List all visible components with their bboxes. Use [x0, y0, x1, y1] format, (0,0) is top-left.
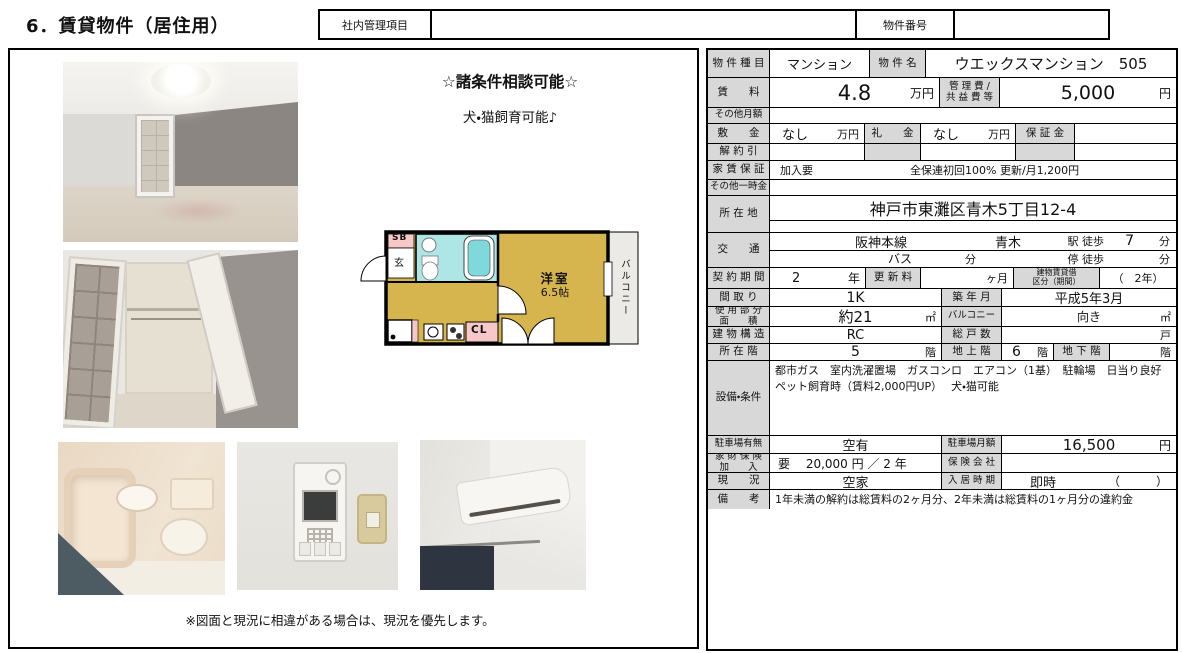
- row-remarks: 備 考 1年未満の解約は総賃料の2ヶ月分、2年未満は総賃料の1ヶ月分の違約金: [708, 490, 1176, 509]
- stop-suffix: 停 徒歩: [1068, 251, 1105, 267]
- photo-closet: [63, 250, 298, 428]
- washer-drain: [391, 335, 396, 340]
- floor-plan: SB 玄 CL 洋室 6.5帖 バルコニー: [360, 226, 660, 350]
- renewal-unit: ヶ月: [986, 270, 1008, 286]
- label-built: 築 年 月: [942, 289, 1002, 306]
- transport-train-line-row: 阪神本線 青木 駅 徒歩 7 分: [770, 233, 1176, 251]
- address-line2: [770, 221, 1176, 232]
- intercom-screen: [302, 490, 338, 522]
- header-bar: 社内管理項目 物件番号: [318, 9, 1110, 40]
- movein-paren: （ ）: [1108, 473, 1168, 489]
- label-address: 所 在 地: [708, 196, 770, 232]
- label-parking-fee: 駐車場月額: [942, 436, 1002, 453]
- room-glass-door: [135, 114, 175, 198]
- label-remarks: 備 考: [708, 490, 770, 509]
- row-equipment: 設備・条件 都市ガス 室内洗濯置場 ガスコンロ エアコン（1基） 駐輪場 日当り…: [708, 361, 1176, 436]
- balcony-unit: ㎡: [1160, 309, 1171, 325]
- photo-air-conditioner: [420, 440, 586, 590]
- light-switch: [357, 494, 387, 544]
- internal-mgmt-label: 社内管理項目: [320, 11, 432, 38]
- cancellation-blank-2: [1075, 144, 1176, 160]
- cancellation-value: [770, 144, 865, 160]
- floors-below-cell: 階: [1110, 344, 1176, 360]
- label-floors-above: 地 上 階: [942, 344, 1002, 360]
- label-area: 使 用 部 分 面 積: [708, 307, 770, 326]
- promo-line1: ☆諸条件相談可能☆: [340, 70, 680, 92]
- door-panes: [141, 120, 169, 192]
- property-no-label: 物件番号: [855, 11, 955, 38]
- layout-value: 1K: [770, 289, 942, 306]
- plan-room-size: 6.5帖: [520, 284, 590, 300]
- status-value: 空家: [770, 473, 942, 489]
- glass-panes: [65, 264, 120, 423]
- area-unit: ㎡: [925, 309, 936, 325]
- key-money-cell: なし 万円: [921, 124, 1016, 143]
- row-contract: 契 約 期 間 2 年 更 新 料 ヶ月 建物賃貸借 区分（期間） （ 2年）: [708, 268, 1176, 289]
- key-money-unit: 万円: [988, 126, 1010, 142]
- label-floor: 所 在 階: [708, 344, 770, 360]
- label-property-type: 物 件 種 目: [708, 50, 770, 77]
- floors-above-unit: 階: [1037, 344, 1048, 360]
- property-sheet: { "page": { "title": "6．賃貸物件（居住用）" }, "h…: [0, 0, 1182, 653]
- promo-text: ☆諸条件相談可能☆ 犬・猫飼育可能♪: [340, 70, 680, 126]
- cancellation-gray-1: [865, 144, 921, 160]
- station-name: 青木: [995, 233, 1021, 251]
- row-other-onetime: その他一時金: [708, 180, 1176, 196]
- mgmt-fee-value: 5,000: [1000, 78, 1176, 107]
- stove-burner-2: [456, 333, 462, 339]
- intercom-unit: [293, 462, 347, 562]
- floors-above-cell: 6 階: [1002, 344, 1054, 360]
- kitchen-sink-unit: [424, 324, 443, 340]
- label-property-name: 物 件 名: [870, 50, 926, 77]
- photo-intercom: [237, 442, 398, 590]
- walk-minutes-unit: 分: [1159, 233, 1170, 249]
- movein-value: 即時: [1002, 473, 1056, 489]
- area-value: 約21: [770, 307, 941, 326]
- photo-interior-room: [63, 62, 298, 242]
- floor-unit: 階: [925, 344, 936, 360]
- parking-fee-value: 16,500: [1002, 436, 1176, 453]
- insurer-value: [1002, 454, 1176, 472]
- intercom-speaker: [325, 469, 341, 485]
- walk-minutes: 7: [1125, 233, 1134, 249]
- mgmt-fee-cell: 5,000 円: [1000, 78, 1176, 107]
- plan-sb-label: SB: [392, 233, 407, 243]
- cancellation-gray-2: [1016, 144, 1075, 160]
- ceiling-light: [151, 64, 211, 98]
- mgmt-fee-unit: 円: [1159, 84, 1171, 101]
- parking-fee-cell: 16,500 円: [1002, 436, 1176, 453]
- bathtub-inner: [468, 240, 490, 276]
- equipment-cell: 都市ガス 室内洗濯置場 ガスコンロ エアコン（1基） 駐輪場 日当り良好 ペット…: [770, 361, 1176, 435]
- promo-line2: 犬・猫飼育可能♪: [340, 106, 680, 126]
- plan-balcony-label: バルコニー: [612, 236, 636, 340]
- row-insurance: 家 財 保 険 加 入 要 20,000 円 ／ 2 年 保 険 会 社: [708, 454, 1176, 473]
- label-contract: 契 約 期 間: [708, 268, 770, 288]
- label-insurer: 保 険 会 社: [942, 454, 1002, 472]
- label-deposit: 敷 金: [708, 124, 770, 143]
- floors-below-unit: 階: [1160, 344, 1171, 360]
- area-cell: 約21 ㎡: [770, 307, 942, 326]
- row-status: 現 況 空家 入 居 時 期 即時 （ ）: [708, 473, 1176, 490]
- label-lease-type: 建物賃貸借 区分（期間）: [1014, 268, 1100, 288]
- bus-minutes-unit: 分: [965, 251, 976, 267]
- row-rent-guarantee: 家 賃 保 証 加入要 全保連初回100% 更新/月1,200円: [708, 161, 1176, 180]
- label-total-units: 総 戸 数: [942, 327, 1002, 343]
- row-other-monthly: その他月額: [708, 108, 1176, 124]
- address-cell: 神戸市東灘区青木5丁目12-4: [770, 196, 1176, 232]
- plan-closet-label: CL: [471, 324, 487, 336]
- label-cancellation: 解 約 引: [708, 144, 770, 160]
- transport-bus-row: バス 分 停 徒歩 分: [770, 251, 1176, 268]
- label-mgmt-fee: 管 理 費 / 共 益 費 等: [940, 78, 1000, 107]
- other-monthly-value: [770, 108, 1176, 123]
- total-units-unit: 戸: [1160, 327, 1171, 343]
- contract-unit: 年: [848, 270, 860, 287]
- station-suffix: 駅 徒歩: [1068, 233, 1105, 249]
- row-transport: 交 通 阪神本線 青木 駅 徒歩 7 分 バス 分 停 徒歩 分: [708, 233, 1176, 268]
- row-parking: 駐車場有無 空有 駐車場月額 16,500 円: [708, 436, 1176, 454]
- kitchen-pink-strip: [412, 320, 418, 342]
- label-guarantee-money: 保 証 金: [1016, 124, 1075, 143]
- bath-sink: [116, 484, 158, 512]
- label-other-monthly: その他月額: [708, 108, 770, 123]
- structure-value: RC: [770, 327, 942, 343]
- label-layout: 間 取 り: [708, 289, 770, 306]
- dark-window: [420, 546, 494, 590]
- floor-cell: 5 階: [770, 344, 942, 360]
- intercom-keypad: [307, 528, 333, 542]
- row-property-type: 物 件 種 目 マンション 物 件 名 ウエックスマンション 505: [708, 50, 1176, 78]
- label-status: 現 況: [708, 473, 770, 489]
- label-movein: 入 居 時 期: [942, 473, 1002, 489]
- row-floor: 所 在 階 5 階 地 上 階 6 階 地 下 階 階: [708, 344, 1176, 361]
- remarks-text: 1年未満の解約は総賃料の2ヶ月分、2年未満は総賃料の1ヶ月分の違約金: [775, 492, 1133, 507]
- plan-entrance-label: 玄: [394, 254, 404, 269]
- toilet-tank: [170, 478, 214, 510]
- row-deposit: 敷 金 なし 万円 礼 金 なし 万円 保 証 金: [708, 124, 1176, 144]
- parking-value: 空有: [770, 436, 942, 453]
- balcony-window: [604, 262, 612, 296]
- bus-label: バス: [888, 250, 912, 267]
- row-area: 使 用 部 分 面 積 約21 ㎡ バルコニー 向き ㎡: [708, 307, 1176, 327]
- address-line1: 神戸市東灘区青木5丁目12-4: [770, 196, 1176, 221]
- property-table: 物 件 種 目 マンション 物 件 名 ウエックスマンション 505 賃 料 4…: [706, 48, 1178, 651]
- other-onetime-value: [770, 180, 1176, 195]
- parking-fee-unit: 円: [1159, 436, 1171, 453]
- rent-guarantee-detail: 全保連初回100% 更新/月1,200円: [910, 162, 1079, 178]
- total-units-cell: 戸: [1002, 327, 1176, 343]
- property-type-value: マンション: [770, 50, 870, 77]
- left-panel: ☆諸条件相談可能☆ 犬・猫飼育可能♪: [8, 48, 699, 649]
- guarantee-money-value: [1075, 124, 1176, 143]
- row-rent: 賃 料 4.8 万円 管 理 費 / 共 益 費 等 5,000 円: [708, 78, 1176, 108]
- property-no-value-field: [955, 11, 1108, 38]
- renewal-cell: ヶ月: [921, 268, 1014, 288]
- internal-mgmt-value-field: [432, 11, 855, 38]
- transport-cell: 阪神本線 青木 駅 徒歩 7 分 バス 分 停 徒歩 分: [770, 233, 1176, 267]
- remarks-cell: 1年未満の解約は総賃料の2ヶ月分、2年未満は総賃料の1ヶ月分の違約金: [770, 490, 1176, 509]
- plan-disclaimer: ※図面と現況に相違がある場合は、現況を優先します。: [30, 610, 650, 629]
- deposit-unit: 万円: [837, 126, 859, 142]
- label-key-money: 礼 金: [865, 124, 921, 143]
- facing-label: 向き: [1002, 307, 1176, 326]
- movein-cell: 即時 （ ）: [1002, 473, 1176, 489]
- toilet-bowl: [422, 262, 438, 280]
- floor-value: 5: [770, 344, 941, 360]
- stop-minutes-unit: 分: [1159, 251, 1170, 267]
- label-parking: 駐車場有無: [708, 436, 770, 453]
- label-structure: 建 物 構 造: [708, 327, 770, 343]
- built-value: 平成5年3月: [1002, 289, 1176, 306]
- label-insurance: 家 財 保 険 加 入: [708, 454, 770, 472]
- lease-type-value: （ 2年）: [1100, 268, 1176, 288]
- deposit-cell: なし 万円: [770, 124, 865, 143]
- switch-button: [366, 512, 380, 528]
- property-name-value: ウエックスマンション 505: [926, 50, 1176, 77]
- label-equipment: 設備・条件: [708, 361, 770, 435]
- row-layout: 間 取 り 1K 築 年 月 平成5年3月: [708, 289, 1176, 307]
- label-transport: 交 通: [708, 233, 770, 267]
- closet-rod: [131, 318, 208, 320]
- entrance-door-arc: [361, 256, 386, 281]
- label-balcony: バルコニー: [942, 307, 1002, 326]
- label-rent-guarantee: 家 賃 保 証: [708, 161, 770, 179]
- contract-years-cell: 2 年: [770, 268, 866, 288]
- photo-bathroom: [58, 442, 225, 595]
- toilet-bowl: [160, 518, 208, 556]
- train-line: 阪神本線: [855, 233, 907, 251]
- row-cancellation: 解 約 引: [708, 144, 1176, 161]
- label-floors-below: 地 下 階: [1054, 344, 1110, 360]
- row-address: 所 在 地 神戸市東灘区青木5丁目12-4: [708, 196, 1176, 233]
- bathroom-sink: [422, 238, 436, 252]
- rent-guarantee-value: 加入要: [770, 162, 813, 178]
- label-rent: 賃 料: [708, 78, 770, 107]
- page-title: 6．賃貸物件（居住用）: [26, 12, 230, 38]
- stove-burner-1: [450, 327, 456, 333]
- row-structure: 建 物 構 造 RC 総 戸 数 戸: [708, 327, 1176, 344]
- label-other-onetime: その他一時金: [708, 180, 770, 195]
- address-value: 神戸市東灘区青木5丁目12-4: [870, 196, 1077, 220]
- balcony-cell: 向き ㎡: [1002, 307, 1176, 326]
- cancellation-blank-1: [921, 144, 1016, 160]
- room-floor-smudge: [153, 198, 243, 224]
- rent-guarantee-cell: 加入要 全保連初回100% 更新/月1,200円: [770, 161, 1176, 179]
- insurance-value: 要 20,000 円 ／ 2 年: [770, 454, 942, 472]
- rent-cell: 4.8 万円: [770, 78, 940, 107]
- label-renewal: 更 新 料: [866, 268, 921, 288]
- intercom-buttons: [299, 542, 341, 556]
- equipment-text: 都市ガス 室内洗濯置場 ガスコンロ エアコン（1基） 駐輪場 日当り良好 ペット…: [775, 363, 1162, 395]
- rent-unit: 万円: [910, 84, 934, 101]
